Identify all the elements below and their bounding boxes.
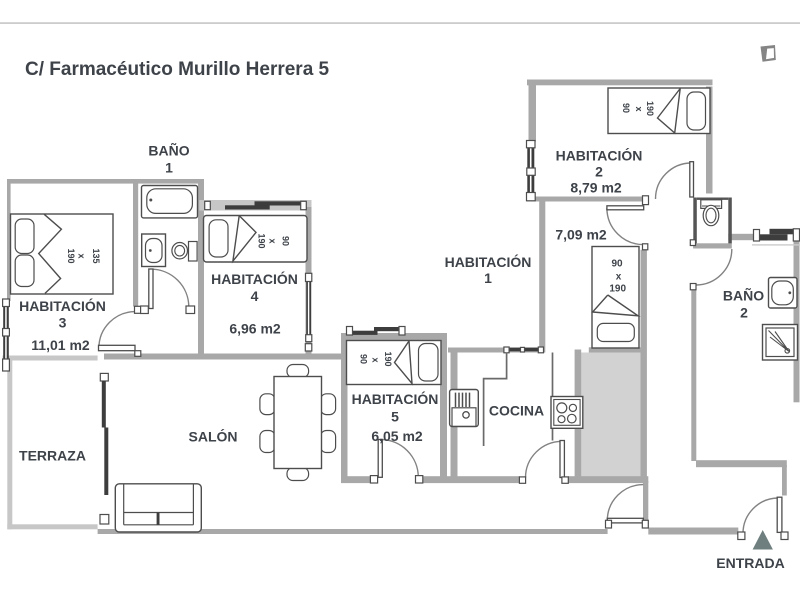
svg-text:x: x xyxy=(634,106,644,111)
svg-text:90: 90 xyxy=(359,354,369,364)
svg-text:3: 3 xyxy=(59,315,67,331)
svg-text:x: x xyxy=(268,238,278,243)
svg-text:HABITACIÓN: HABITACIÓN xyxy=(352,390,439,407)
svg-text:HABITACIÓN: HABITACIÓN xyxy=(19,297,106,314)
svg-text:135: 135 xyxy=(91,248,101,263)
svg-text:SALÓN: SALÓN xyxy=(189,428,238,445)
svg-text:90: 90 xyxy=(621,103,631,113)
svg-text:6,05 m2: 6,05 m2 xyxy=(371,428,423,444)
svg-text:190: 190 xyxy=(383,351,393,366)
svg-text:x: x xyxy=(616,272,622,283)
svg-text:11,01 m2: 11,01 m2 xyxy=(31,337,90,353)
svg-text:HABITACIÓN: HABITACIÓN xyxy=(556,147,643,164)
svg-text:BAÑO: BAÑO xyxy=(723,287,764,304)
svg-text:190: 190 xyxy=(257,233,267,248)
svg-text:90: 90 xyxy=(281,236,291,246)
svg-text:BAÑO: BAÑO xyxy=(148,142,189,159)
svg-text:2: 2 xyxy=(595,164,603,180)
svg-text:HABITACIÓN: HABITACIÓN xyxy=(211,270,298,287)
svg-text:6,96 m2: 6,96 m2 xyxy=(229,321,281,337)
svg-text:5: 5 xyxy=(391,409,399,425)
svg-text:C/ Farmacéutico Murillo Herrer: C/ Farmacéutico Murillo Herrera 5 xyxy=(25,59,330,80)
svg-text:TERRAZA: TERRAZA xyxy=(19,448,86,464)
svg-text:90: 90 xyxy=(611,259,623,270)
svg-text:ENTRADA: ENTRADA xyxy=(716,555,784,571)
svg-text:2: 2 xyxy=(740,305,748,321)
svg-text:190: 190 xyxy=(645,101,655,116)
svg-text:1: 1 xyxy=(165,160,173,176)
svg-text:7,09 m2: 7,09 m2 xyxy=(555,227,607,243)
svg-text:x: x xyxy=(77,253,87,258)
svg-text:COCINA: COCINA xyxy=(489,403,544,419)
svg-text:HABITACIÓN: HABITACIÓN xyxy=(445,253,532,270)
svg-text:190: 190 xyxy=(609,284,626,295)
svg-text:x: x xyxy=(371,357,381,362)
svg-text:4: 4 xyxy=(251,288,259,304)
svg-text:190: 190 xyxy=(66,248,76,263)
svg-text:1: 1 xyxy=(484,270,492,286)
svg-text:8,79 m2: 8,79 m2 xyxy=(570,180,622,196)
